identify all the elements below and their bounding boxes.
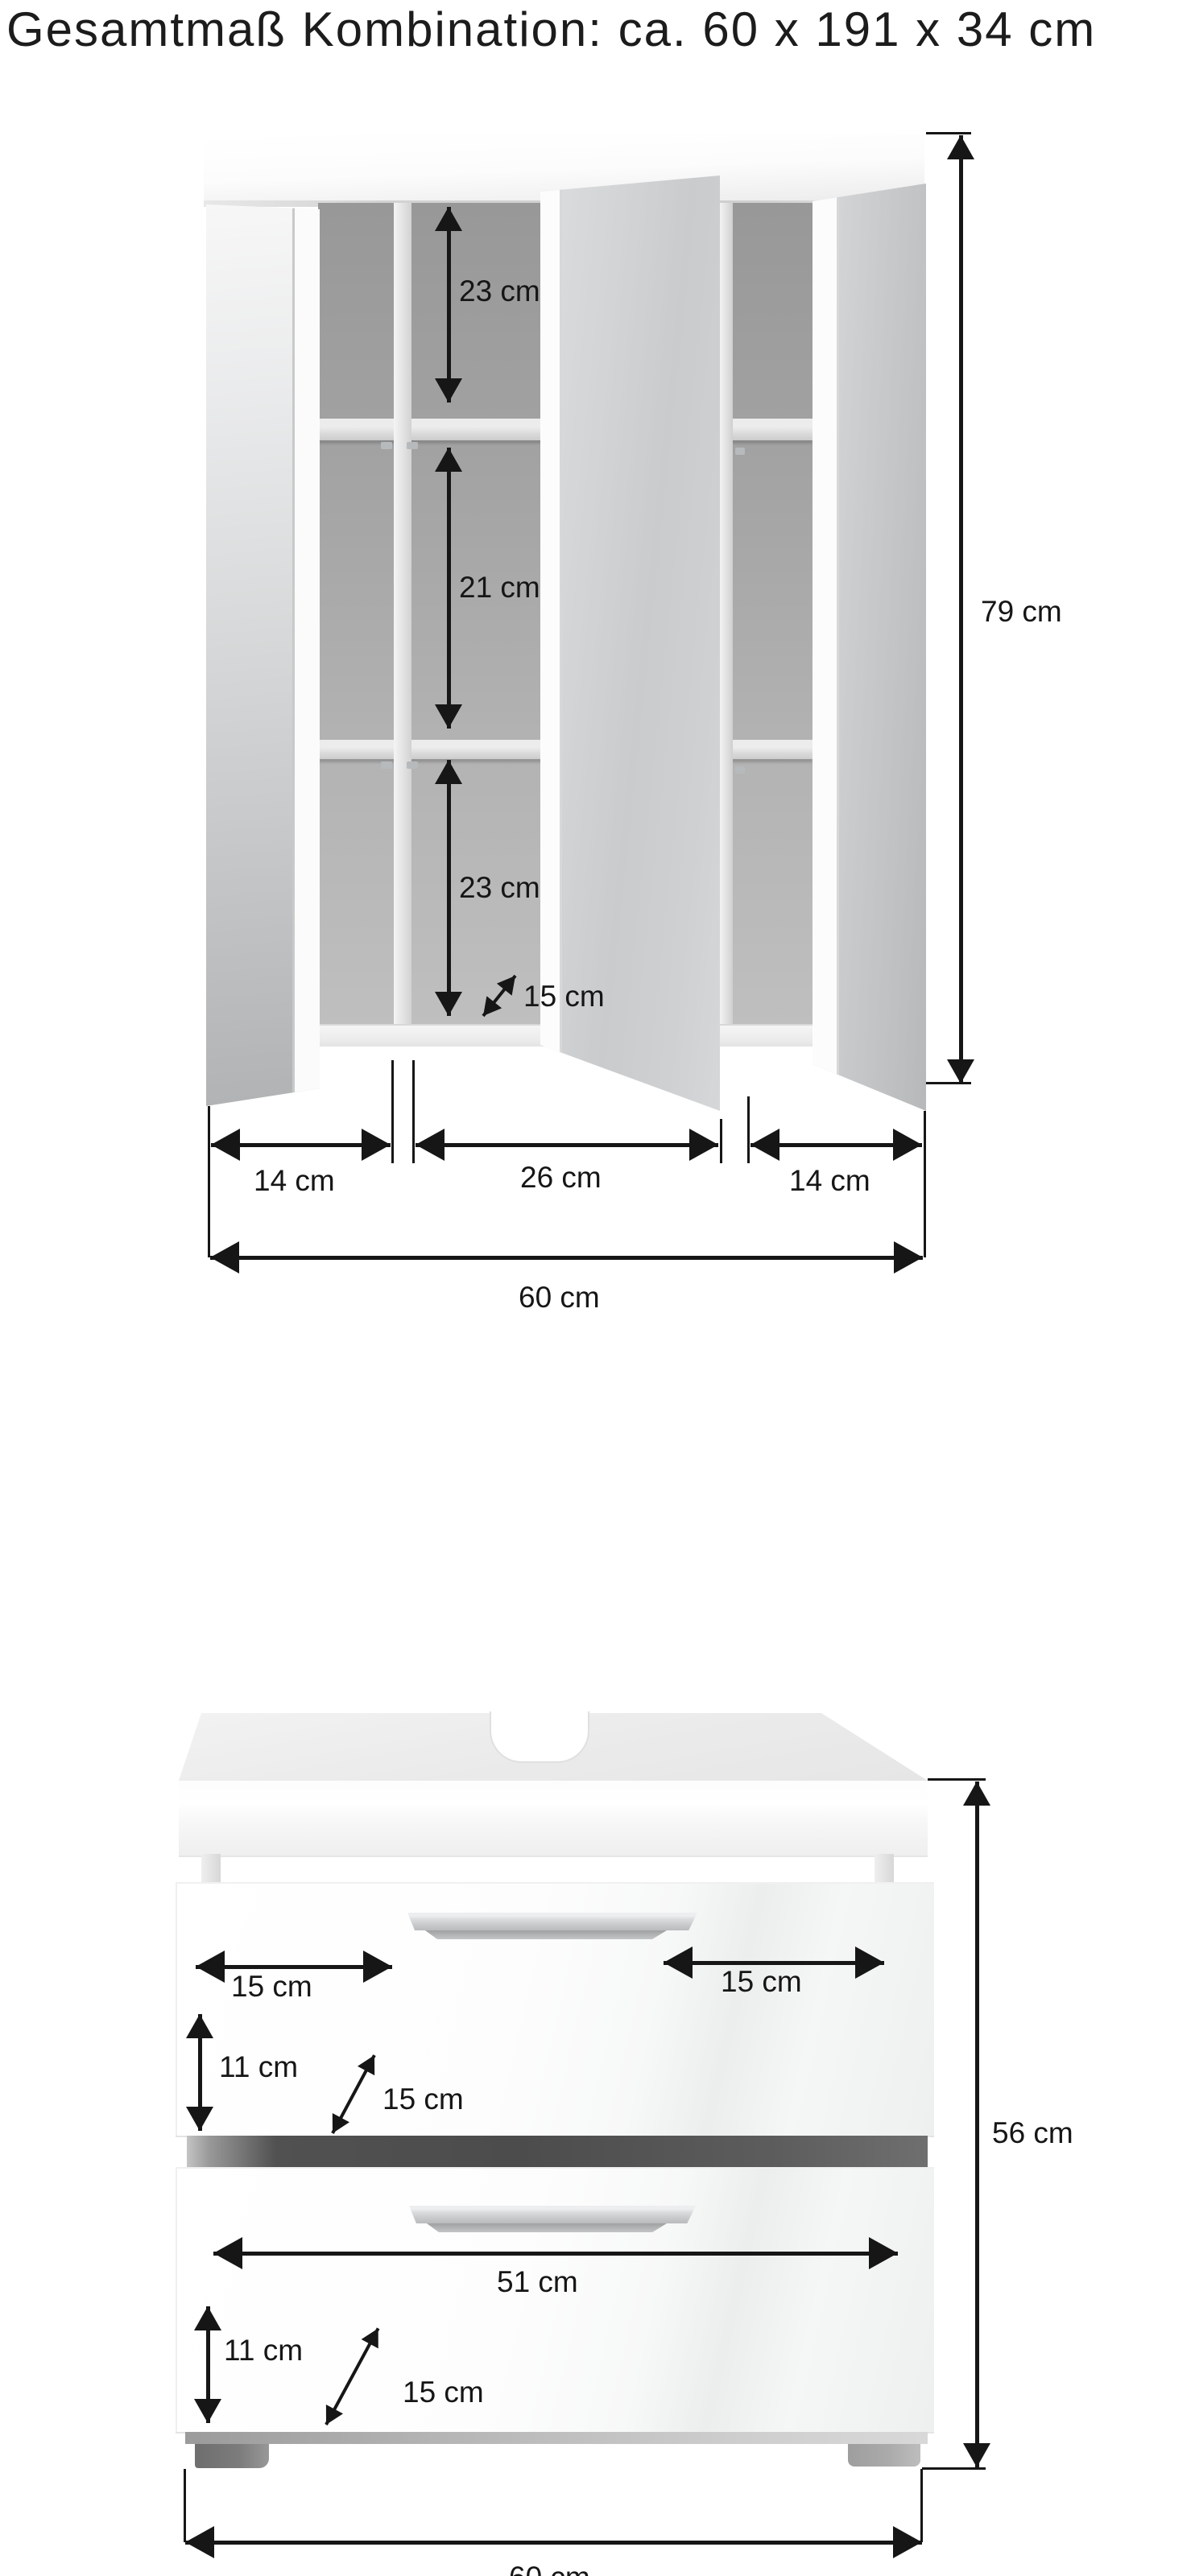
dim-label-drawer2-width: 51 cm bbox=[497, 2264, 578, 2300]
dim-tick bbox=[720, 1119, 722, 1163]
dim-label-drawer1-depth: 15 cm bbox=[382, 2082, 464, 2117]
dim-tick bbox=[924, 1111, 926, 1257]
dim-label-drawer1-height: 11 cm bbox=[219, 2050, 298, 2085]
mirror-cabinet-divider-right bbox=[720, 203, 733, 1024]
mirror-door-right bbox=[813, 184, 926, 1113]
dim-connector bbox=[926, 132, 971, 134]
dimension-diagram-page: Gesamtmaß Kombination: ca. 60 x 191 x 34… bbox=[0, 0, 1195, 2576]
dim-label-drawer1-right: 15 cm bbox=[721, 1964, 802, 2000]
dim-label-mirror-depth: 15 cm bbox=[523, 979, 605, 1014]
vanity-siphon-cutout bbox=[490, 1711, 589, 1763]
dim-arrow-vanity-total-width bbox=[185, 2541, 922, 2545]
dim-tick bbox=[208, 1106, 210, 1257]
dim-tick bbox=[747, 1096, 750, 1163]
dim-arrow-mirror-left-door bbox=[211, 1143, 391, 1147]
vanity-slab-front bbox=[179, 1781, 928, 1857]
dim-label-mirror-left-door: 14 cm bbox=[254, 1163, 335, 1199]
vanity-base-strip bbox=[185, 2432, 928, 2444]
dim-label-vanity-total-width: 60 cm bbox=[509, 2560, 590, 2576]
dim-label-mirror-shelf-bottom: 23 cm bbox=[459, 870, 540, 906]
page-title: Gesamtmaß Kombination: ca. 60 x 191 x 34… bbox=[6, 2, 1096, 57]
dim-arrow-mirror-shelf-top bbox=[447, 207, 451, 402]
dim-label-drawer2-height: 11 cm bbox=[224, 2333, 303, 2368]
shelf-clip bbox=[407, 442, 418, 449]
dim-label-drawer2-depth: 15 cm bbox=[403, 2375, 484, 2410]
drawer-handle-shadow bbox=[427, 2223, 667, 2232]
dim-connector bbox=[928, 1778, 986, 1781]
dim-label-mirror-shelf-middle: 21 cm bbox=[459, 570, 540, 605]
mirror-cabinet-partition bbox=[394, 203, 411, 1024]
dim-arrow-mirror-middle-door bbox=[416, 1143, 718, 1147]
shelf-clip bbox=[735, 766, 745, 774]
dim-arrow-mirror-right-door bbox=[750, 1143, 922, 1147]
dim-tick bbox=[412, 1060, 415, 1163]
vanity-foot-right bbox=[848, 2444, 920, 2467]
shelf-clip bbox=[407, 762, 418, 769]
vanity-support-left bbox=[201, 1854, 221, 1885]
shelf-clip bbox=[735, 448, 745, 455]
dim-label-mirror-shelf-top: 23 cm bbox=[459, 274, 540, 309]
shelf-clip bbox=[381, 442, 392, 449]
vanity-drawer-gap bbox=[187, 2136, 928, 2167]
dim-label-vanity-height: 56 cm bbox=[992, 2116, 1073, 2151]
dim-tick bbox=[391, 1060, 394, 1163]
dim-arrow-drawer2-width bbox=[213, 2252, 898, 2256]
dim-arrow-mirror-shelf-bottom bbox=[447, 760, 451, 1016]
shelf-clip bbox=[381, 762, 392, 769]
mirror-door-center bbox=[540, 175, 720, 1114]
dim-arrow-mirror-shelf-middle bbox=[447, 448, 451, 729]
dim-label-mirror-total-width: 60 cm bbox=[519, 1280, 600, 1315]
dim-label-drawer1-left: 15 cm bbox=[231, 1969, 312, 2004]
drawer-handle-shadow bbox=[425, 1930, 667, 1939]
mirror-door-left bbox=[206, 204, 320, 1108]
dim-label-mirror-height: 79 cm bbox=[981, 594, 1062, 630]
drawer-handle bbox=[409, 2206, 696, 2223]
dim-connector bbox=[922, 2467, 986, 2470]
dim-arrow-drawer2-height bbox=[206, 2306, 210, 2423]
dim-label-mirror-middle-door: 26 cm bbox=[520, 1160, 602, 1195]
vanity-support-right bbox=[875, 1854, 894, 1885]
dim-arrow-drawer1-height bbox=[198, 2014, 202, 2131]
dim-arrow-vanity-height bbox=[975, 1781, 979, 2467]
dim-arrow-mirror-total-width bbox=[210, 1256, 923, 1260]
drawer-handle bbox=[407, 1913, 697, 1930]
vanity-foot-left bbox=[195, 2444, 269, 2468]
dim-arrow-mirror-height bbox=[959, 135, 963, 1084]
dim-label-mirror-right-door: 14 cm bbox=[789, 1163, 870, 1199]
